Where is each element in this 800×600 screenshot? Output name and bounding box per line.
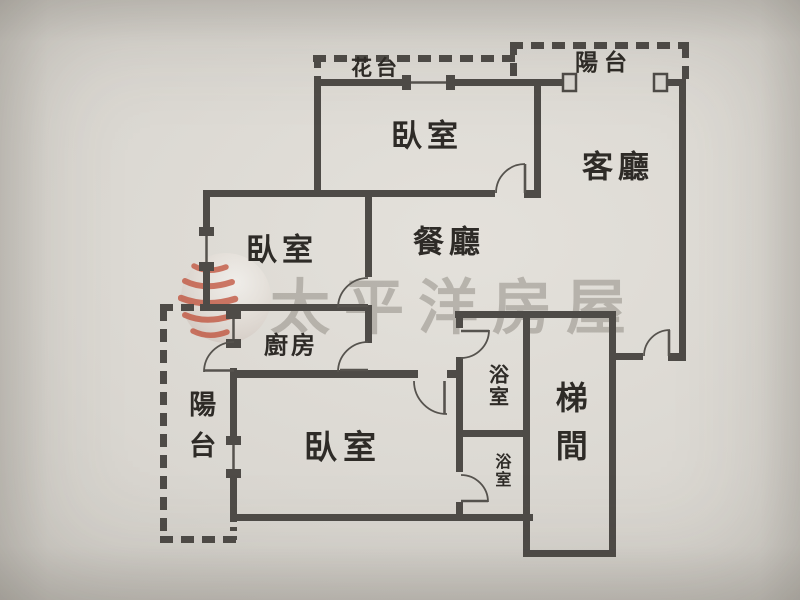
wall-stair-east bbox=[609, 311, 616, 557]
window-jamb bbox=[199, 227, 214, 236]
room-label-flower-terrace: 花台 bbox=[351, 57, 401, 79]
wall-bedroom-top-north-b bbox=[450, 79, 541, 86]
wall-master-south bbox=[230, 514, 533, 521]
door-arc-kitchen-east bbox=[338, 342, 368, 372]
room-label-bathroom-lower: 浴室 bbox=[493, 453, 510, 489]
room-label-bedroom-top: 臥室 bbox=[391, 121, 463, 154]
door-arc-bedroom-mid bbox=[338, 278, 368, 308]
window-jamb bbox=[226, 310, 241, 319]
window-jamb bbox=[226, 339, 241, 348]
sliding-door-post bbox=[654, 74, 667, 91]
window-jamb bbox=[226, 469, 241, 478]
door-arc-master bbox=[414, 381, 447, 414]
door-arc-bath-lower bbox=[461, 475, 488, 502]
wall-bedroom-living-divider bbox=[534, 85, 541, 198]
room-label-bedroom-mid: 臥室 bbox=[246, 235, 318, 268]
wall-living-east bbox=[679, 79, 686, 361]
floor-plan-photo: 太平洋房屋 bbox=[0, 0, 800, 600]
wall-bedroom-mid-east-a bbox=[365, 192, 372, 277]
room-label-bathroom-upper: 浴室 bbox=[487, 364, 508, 408]
wall-stair-south bbox=[523, 550, 616, 557]
room-label-dining-room: 餐廳 bbox=[413, 227, 485, 260]
wall-bedroom-top-north-a bbox=[314, 79, 408, 86]
wall-entry-south-b bbox=[668, 353, 686, 361]
door-arc-bath-upper bbox=[461, 330, 489, 358]
door-arc-entry bbox=[644, 330, 670, 356]
room-label-balcony-lower: 陽台 bbox=[185, 390, 213, 472]
wall-master-north bbox=[230, 370, 418, 378]
sliding-door-post bbox=[563, 74, 576, 91]
wall-bath-west-c bbox=[456, 502, 463, 521]
room-label-kitchen: 廚房 bbox=[264, 333, 318, 358]
window-jamb bbox=[199, 262, 214, 271]
flower-terrace-outline bbox=[313, 42, 517, 79]
wall-bath-west-b bbox=[456, 357, 463, 472]
window-jamb bbox=[446, 75, 455, 90]
wall-master-west-a bbox=[230, 368, 237, 437]
wall-entry-south-a bbox=[616, 353, 643, 360]
wall-bath-divider bbox=[458, 430, 528, 437]
wall-bedroom-top-south bbox=[207, 190, 495, 197]
room-label-living-room: 客廳 bbox=[582, 152, 654, 185]
wall-bedroom-mid-west-a bbox=[203, 190, 210, 228]
wall-bedroom-top-west bbox=[314, 79, 321, 197]
window-jamb bbox=[402, 75, 411, 90]
room-label-balcony-upper: 陽台 bbox=[575, 51, 633, 75]
window-jamb bbox=[226, 436, 241, 445]
wall-bath-stair-north bbox=[455, 311, 616, 318]
room-label-stairwell: 梯間 bbox=[552, 381, 586, 477]
door-arc-bedroom-top bbox=[496, 164, 525, 193]
room-label-bedroom-master: 臥室 bbox=[304, 431, 382, 466]
floor-plan-drawing bbox=[0, 0, 800, 600]
